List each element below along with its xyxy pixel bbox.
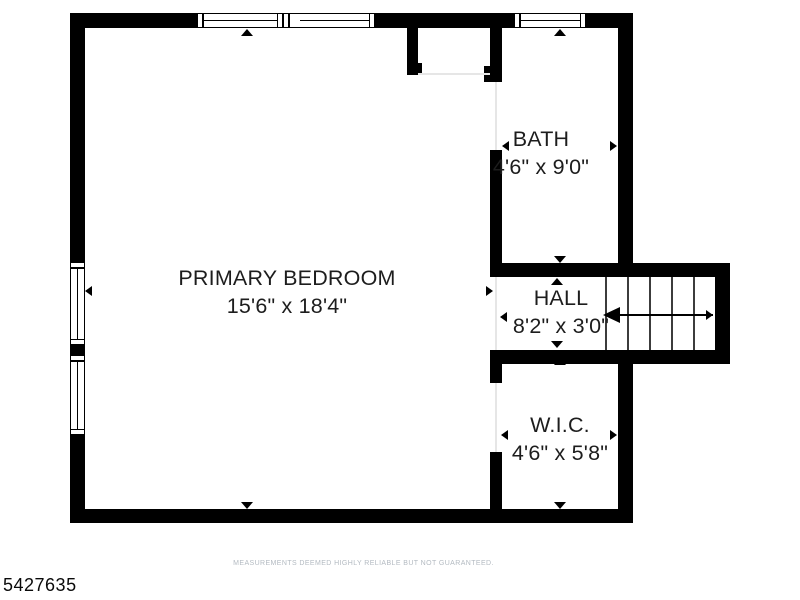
mls-number: 5427635: [3, 575, 77, 596]
window-bath-top: [514, 13, 586, 28]
dim-arrow-bedroom-top-icon: [241, 29, 253, 36]
window-pane-line: [77, 361, 79, 429]
room-name: HALL: [485, 284, 637, 312]
dim-arrow-wic-bottom-icon: [554, 502, 566, 509]
window-pane-line: [520, 20, 580, 22]
window-left-lower: [70, 355, 85, 435]
room-name: PRIMARY BEDROOM: [107, 264, 467, 292]
wall-bath-right: [618, 13, 633, 264]
wall-top-middle: [375, 13, 514, 28]
stair-line-end-arrow-icon: [706, 310, 713, 320]
wall-left-upper: [70, 13, 85, 262]
room-label-hall: HALL 8'2" x 3'0": [485, 284, 637, 340]
room-name: W.I.C.: [484, 411, 636, 439]
floorplan-canvas: PRIMARY BEDROOM 15'6" x 18'4" BATH 4'6" …: [0, 0, 800, 600]
room-dimensions: 4'6" x 5'8": [484, 439, 636, 467]
wall-stair-right: [715, 263, 730, 364]
dim-arrow-bath-top-icon: [554, 29, 566, 36]
room-dimensions: 4'6" x 9'0": [465, 153, 617, 181]
disclaimer-text: MEASUREMENTS DEEMED HIGHLY RELIABLE BUT …: [0, 560, 727, 567]
wall-left-between-windows: [70, 345, 85, 355]
dim-arrow-bath-bottom-icon: [554, 256, 566, 263]
window-top-left-b: [283, 13, 375, 28]
room-dimensions: 15'6" x 18'4": [107, 292, 467, 320]
dim-arrow-bedroom-bottom-icon: [241, 502, 253, 509]
dim-arrow-wic-top-icon: [554, 358, 566, 365]
window-frame-cap: [288, 14, 290, 27]
window-left-upper: [70, 262, 85, 345]
wall-hall-top: [495, 263, 730, 277]
window-pane-line: [300, 20, 369, 22]
room-label-bath: BATH 4'6" x 9'0": [465, 125, 617, 181]
window-pane-line: [203, 20, 277, 22]
room-dimensions: 8'2" x 3'0": [485, 312, 637, 340]
wall-top-left: [70, 13, 197, 28]
room-label-primary-bedroom: PRIMARY BEDROOM 15'6" x 18'4": [107, 264, 467, 320]
dim-arrow-hall-bottom-icon: [551, 341, 563, 348]
room-name: BATH: [465, 125, 617, 153]
wall-hall-bottom: [490, 350, 730, 364]
room-label-wic: W.I.C. 4'6" x 5'8": [484, 411, 636, 467]
window-top-left-a: [197, 13, 283, 28]
dim-arrow-bedroom-left-icon: [85, 286, 92, 296]
window-pane-line: [77, 268, 79, 339]
wall-bottom: [70, 509, 633, 523]
opening-line-nook: [418, 73, 490, 75]
